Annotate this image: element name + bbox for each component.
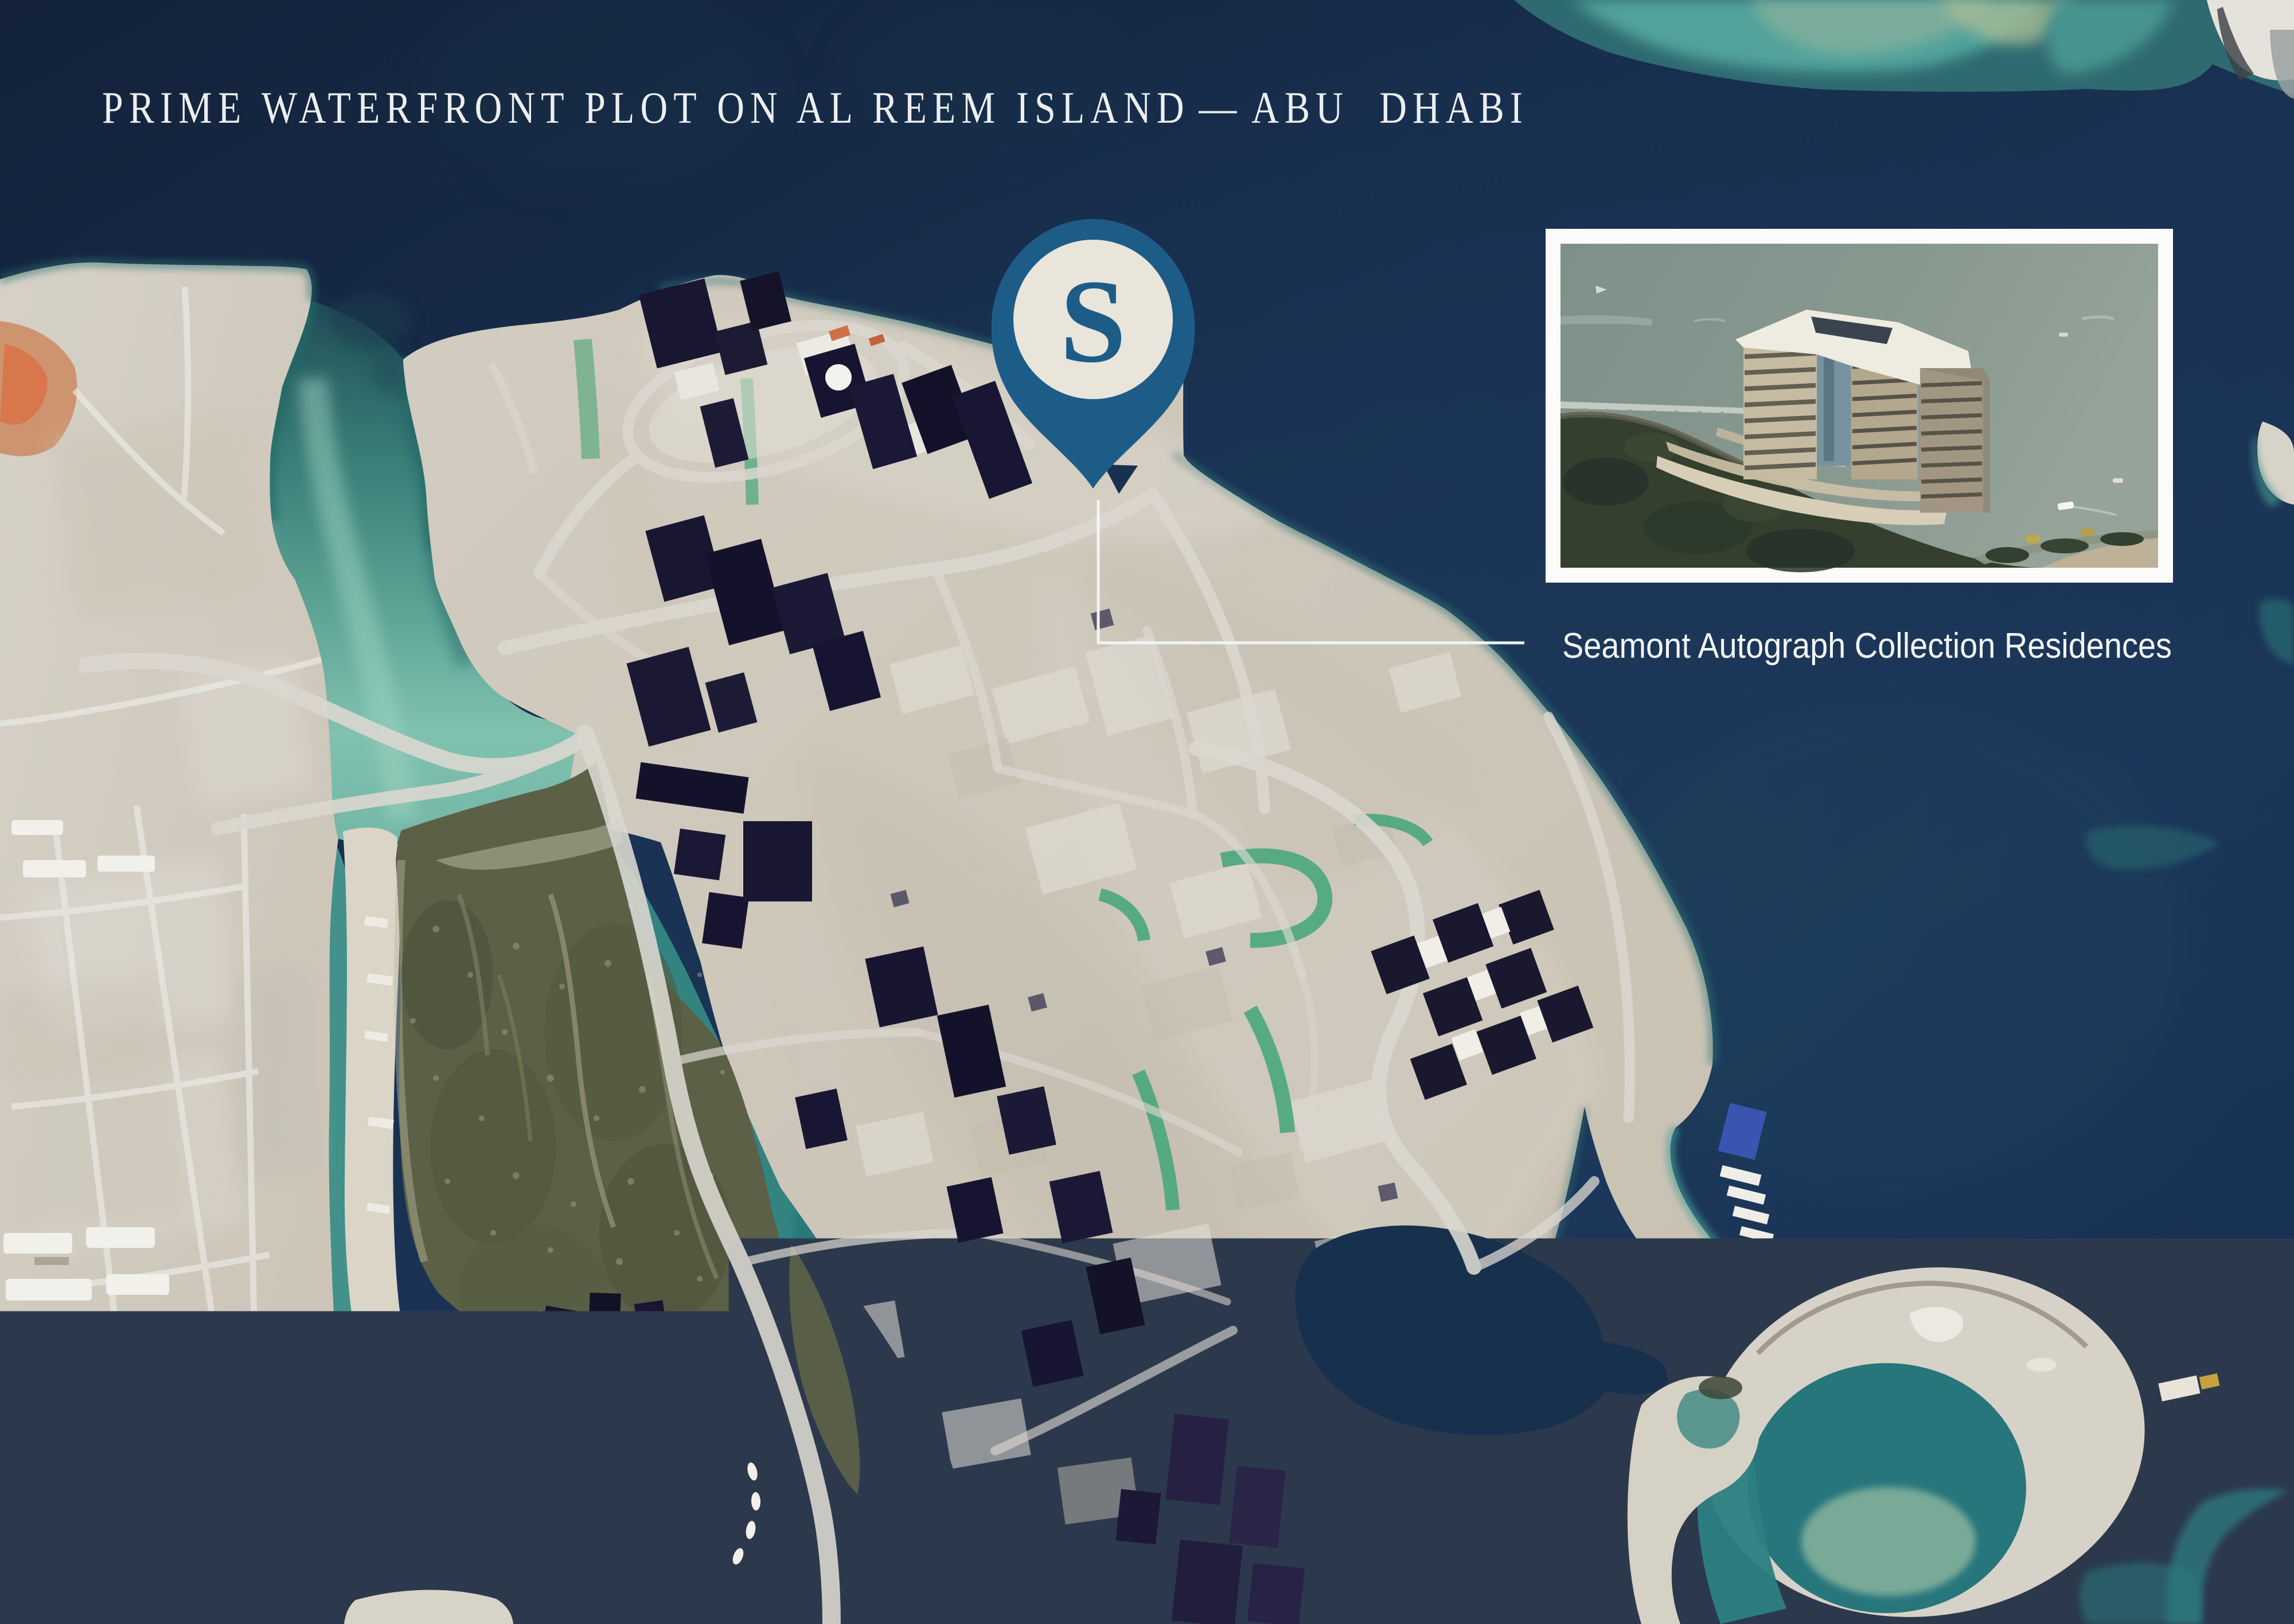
svg-text:S: S	[1060, 255, 1126, 387]
svg-text:PRIME WATERFRONT PLOT ON AL RE: PRIME WATERFRONT PLOT ON AL REEM ISLAND …	[102, 83, 1528, 132]
svg-text:Seamont Autograph Collection R: Seamont Autograph Collection Residences	[1562, 626, 2172, 666]
